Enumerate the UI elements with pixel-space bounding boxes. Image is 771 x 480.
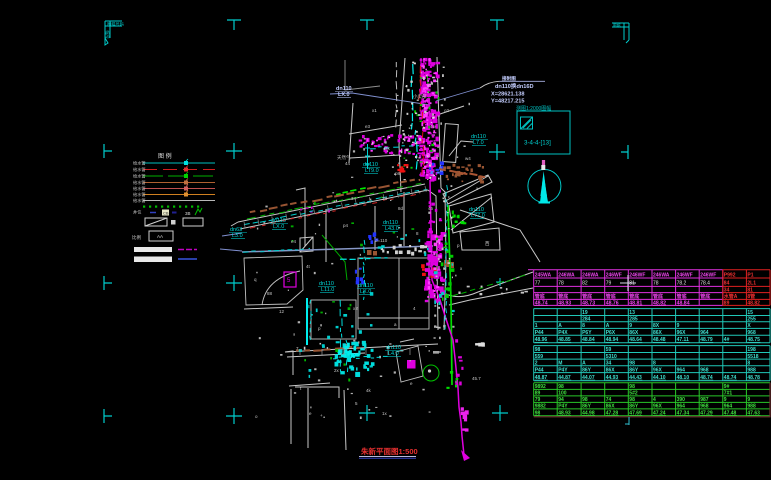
svg-text:管底: 管底: [677, 293, 687, 300]
svg-text:小卖部: 小卖部: [413, 93, 427, 100]
svg-text:Y=48217.215: Y=48217.215: [491, 98, 524, 104]
svg-text:L11.0: L11.0: [321, 287, 334, 293]
svg-text:9: 9: [629, 323, 632, 329]
svg-text:管底: 管底: [653, 293, 663, 300]
svg-text:964: 964: [700, 330, 709, 336]
svg-text:e4: e4: [291, 239, 297, 244]
svg-text:89: 89: [535, 391, 541, 397]
svg-text:P992: P992: [724, 273, 736, 279]
svg-text:9882: 9882: [535, 404, 546, 410]
svg-text:559: 559: [535, 354, 544, 360]
svg-text:8管: 8管: [747, 293, 755, 300]
svg-text:245WA: 245WA: [535, 273, 552, 279]
svg-text:1: 1: [535, 323, 538, 329]
svg-text:988: 988: [747, 367, 756, 373]
svg-text:78.2: 78.2: [677, 281, 687, 287]
svg-text:19: 19: [582, 310, 588, 316]
svg-text:88: 88: [267, 291, 273, 296]
svg-text:98: 98: [535, 347, 541, 353]
svg-text:A: A: [558, 323, 562, 329]
svg-text:96X: 96X: [653, 404, 663, 410]
svg-text:4: 4: [653, 397, 656, 403]
svg-text:L43.0: L43.0: [385, 226, 399, 232]
svg-text:284: 284: [582, 317, 591, 323]
svg-text:246WA: 246WA: [582, 273, 599, 279]
svg-text:23: 23: [382, 196, 388, 201]
svg-text:管底: 管底: [629, 293, 639, 300]
svg-text:86Y: 86Y: [629, 367, 639, 373]
svg-text:13: 13: [629, 310, 635, 316]
svg-text:井位: 井位: [133, 209, 141, 216]
svg-text:246WA: 246WA: [558, 273, 575, 279]
svg-text:图幅: 图幅: [613, 23, 621, 28]
svg-text:78.4: 78.4: [700, 281, 710, 287]
svg-text:100: 100: [558, 391, 567, 397]
svg-text:图 例: 图 例: [158, 152, 172, 160]
svg-text:LT9.0: LT9.0: [365, 168, 379, 174]
svg-text:98: 98: [629, 397, 635, 403]
svg-text:2L1: 2L1: [747, 281, 756, 287]
svg-text:水管A: 水管A: [723, 293, 738, 300]
svg-text:M: M: [558, 361, 562, 367]
svg-text:5#2: 5#2: [629, 391, 638, 397]
svg-text:管底: 管底: [535, 293, 545, 300]
svg-text:天然气: 天然气: [337, 154, 351, 161]
svg-text:5518: 5518: [747, 354, 758, 360]
svg-text:给水管: 给水管: [133, 166, 146, 173]
svg-text:3-4-4-[13]: 3-4-4-[13]: [524, 140, 551, 147]
svg-text:246WF: 246WF: [677, 273, 693, 279]
svg-text:89: 89: [724, 301, 730, 307]
svg-text:964: 964: [724, 404, 733, 410]
svg-text:8: 8: [582, 323, 585, 329]
svg-text:给水管: 给水管: [133, 173, 146, 180]
svg-text:98: 98: [629, 361, 635, 367]
svg-text:P4X: P4X: [558, 330, 568, 336]
svg-text:246WF: 246WF: [629, 273, 645, 279]
svg-text:246WA: 246WA: [653, 273, 670, 279]
svg-text:L4.0: L4.0: [388, 351, 399, 357]
svg-text:e3: e3: [365, 124, 371, 129]
svg-text:CB: CB: [163, 211, 169, 216]
svg-text:LX.0: LX.0: [338, 92, 350, 98]
svg-text:幅号: 幅号: [104, 31, 111, 39]
svg-text:P6Y: P6Y: [582, 330, 592, 336]
svg-text:12: 12: [279, 309, 285, 314]
svg-text:968: 968: [700, 404, 709, 410]
svg-text:1x: 1x: [382, 411, 388, 416]
svg-text:d=110: d=110: [375, 238, 388, 243]
svg-text:79: 79: [535, 397, 541, 403]
svg-text:86Y: 86Y: [582, 367, 592, 373]
svg-text:P4Y: P4Y: [558, 404, 568, 410]
svg-text:8d: 8d: [398, 206, 404, 211]
svg-text:86Y: 86Y: [582, 404, 592, 410]
svg-text:P6X: P6X: [606, 330, 616, 336]
svg-text:9: 9: [677, 323, 680, 329]
svg-text:246WF: 246WF: [606, 273, 622, 279]
svg-text:图幅号码: 图幅号码: [107, 21, 124, 28]
svg-text:P1: P1: [747, 273, 753, 279]
svg-text:3B: 3B: [185, 211, 191, 216]
svg-text:p8: p8: [395, 171, 401, 176]
svg-text:45: 45: [428, 206, 434, 211]
svg-text:给水管: 给水管: [133, 160, 146, 167]
svg-text:968: 968: [700, 367, 709, 373]
svg-text:4k: 4k: [366, 388, 372, 393]
svg-text:朱新平面图1:500: 朱新平面图1:500: [361, 446, 418, 456]
svg-text:A: A: [606, 323, 610, 329]
svg-text:测图1:2000图幅: 测图1:2000图幅: [516, 105, 551, 112]
svg-text:8: 8: [747, 361, 750, 367]
svg-text:给水管: 给水管: [133, 179, 146, 186]
svg-text:比例: 比例: [132, 234, 141, 241]
svg-text:+: +: [320, 413, 323, 418]
svg-text:964: 964: [677, 404, 686, 410]
svg-text:15: 15: [747, 310, 753, 316]
svg-text:x2: x2: [353, 306, 358, 311]
svg-text:987: 987: [700, 397, 709, 403]
svg-text:86X: 86X: [606, 404, 616, 410]
svg-text:246WF: 246WF: [700, 273, 716, 279]
svg-text:LX.0: LX.0: [360, 289, 371, 295]
svg-text:84: 84: [724, 281, 730, 287]
svg-text:dn110换dn16D: dn110换dn16D: [495, 82, 534, 90]
svg-text:X=28621.138: X=28621.138: [491, 91, 524, 97]
svg-text:44: 44: [345, 161, 351, 166]
svg-text:P44: P44: [535, 330, 544, 336]
svg-text:7#1: 7#1: [724, 391, 733, 397]
svg-text:285: 285: [629, 317, 638, 323]
svg-text:x1: x1: [372, 108, 377, 113]
svg-text:98: 98: [558, 384, 564, 390]
svg-text:98: 98: [629, 384, 635, 390]
svg-text:78: 78: [558, 281, 564, 287]
svg-text:8: 8: [653, 361, 656, 367]
svg-text:L7.0: L7.0: [473, 140, 484, 146]
svg-text:2x: 2x: [334, 368, 340, 373]
svg-text:255: 255: [747, 317, 756, 323]
svg-text:7k: 7k: [385, 146, 391, 151]
svg-text:2: 2: [535, 361, 538, 367]
svg-text:管底: 管底: [558, 293, 568, 300]
svg-text:8X: 8X: [653, 323, 660, 329]
svg-text:L77.0: L77.0: [471, 213, 485, 219]
svg-text:964: 964: [677, 367, 686, 373]
svg-text:管底: 管底: [700, 293, 710, 300]
svg-text:4w: 4w: [430, 124, 437, 129]
svg-text:34: 34: [351, 196, 357, 201]
svg-text:77: 77: [535, 281, 541, 287]
svg-text:w4: w4: [465, 156, 471, 161]
svg-text:L3.0: L3.0: [232, 233, 243, 239]
svg-text:管底: 管底: [582, 293, 592, 300]
svg-text:96X: 96X: [653, 367, 663, 373]
svg-text:78: 78: [653, 281, 659, 287]
svg-text:5310: 5310: [606, 354, 617, 360]
svg-text:94: 94: [558, 397, 564, 403]
svg-text:968: 968: [747, 330, 756, 336]
svg-text:86X: 86X: [606, 367, 616, 373]
svg-text:给水管: 给水管: [133, 197, 146, 204]
svg-text:AA: AA: [157, 234, 163, 239]
svg-text:48.82: 48.82: [747, 301, 760, 307]
svg-text:o2: o2: [444, 108, 450, 113]
svg-text:96X: 96X: [677, 330, 687, 336]
svg-text:A: A: [582, 361, 586, 367]
svg-text:86X: 86X: [653, 330, 663, 336]
svg-text:9: 9: [747, 397, 750, 403]
svg-text:198: 198: [747, 347, 756, 353]
svg-text:34: 34: [606, 361, 612, 367]
svg-text:81: 81: [747, 288, 753, 294]
svg-text:9#: 9#: [724, 384, 730, 390]
svg-text:86X: 86X: [629, 330, 639, 336]
svg-text:给水管: 给水管: [133, 185, 146, 192]
svg-text:98: 98: [582, 397, 588, 403]
svg-text:74: 74: [606, 397, 612, 403]
svg-text:82: 82: [582, 281, 588, 287]
svg-text:给水管: 给水管: [133, 191, 146, 198]
svg-text:LX.0: LX.0: [273, 224, 284, 230]
svg-text:45.7: 45.7: [472, 376, 481, 381]
svg-text:管底: 管底: [606, 293, 616, 300]
svg-text:79: 79: [606, 281, 612, 287]
svg-text:p4: p4: [343, 223, 349, 228]
svg-text:988: 988: [747, 404, 756, 410]
svg-text:390: 390: [677, 397, 686, 403]
svg-text:P44: P44: [535, 367, 544, 373]
svg-text:9: 9: [724, 397, 727, 403]
svg-text:34: 34: [724, 288, 730, 294]
svg-text:59: 59: [606, 347, 612, 353]
svg-text:86Y: 86Y: [629, 404, 639, 410]
svg-text:9892: 9892: [535, 384, 546, 390]
svg-text:P4Y: P4Y: [558, 367, 568, 373]
